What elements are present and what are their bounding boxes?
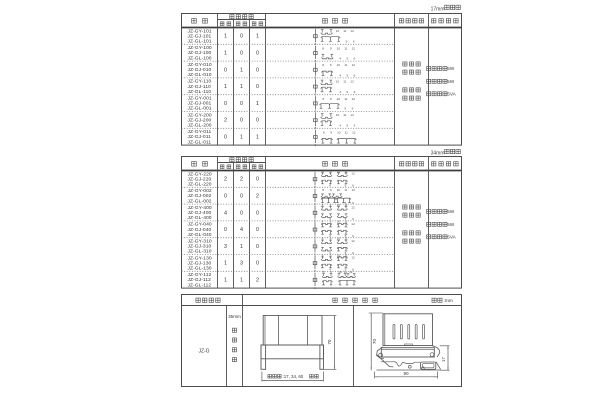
svg-text:JZ-GY-400: JZ-GY-400 (188, 205, 212, 211)
svg-text:11: 11 (344, 169, 347, 173)
svg-text:JZ-GJ-112: JZ-GJ-112 (188, 277, 212, 283)
svg-text:0: 0 (256, 67, 259, 73)
svg-text:1: 1 (256, 101, 259, 107)
svg-text:0: 0 (224, 135, 227, 141)
svg-text:9: 9 (330, 97, 332, 101)
svg-text:JZ-GY-220: JZ-GY-220 (188, 171, 212, 177)
svg-text:17: 17 (441, 357, 446, 362)
svg-text:JZ-GJ-040: JZ-GJ-040 (188, 227, 212, 233)
svg-text:12: 12 (351, 222, 355, 226)
svg-text:JZ-GJ-001: JZ-GJ-001 (188, 101, 212, 107)
svg-text:1: 1 (256, 34, 259, 40)
svg-text:9: 9 (330, 130, 332, 134)
svg-text:1: 1 (240, 84, 243, 90)
svg-text:0: 0 (224, 67, 227, 73)
svg-text:JZ-GL-220: JZ-GL-220 (188, 182, 212, 188)
svg-text:10: 10 (337, 46, 341, 50)
svg-text:12: 12 (351, 172, 355, 176)
svg-text:12: 12 (351, 205, 355, 209)
svg-text:35mm: 35mm (228, 314, 241, 319)
svg-text:12: 12 (352, 188, 356, 192)
svg-text:12: 12 (350, 29, 354, 33)
svg-text:JZ-GL-200: JZ-GL-200 (188, 123, 212, 129)
svg-text:10: 10 (337, 63, 341, 67)
svg-text:3: 3 (224, 244, 227, 250)
svg-text:0: 0 (256, 210, 259, 216)
svg-text:5W: 5W (447, 222, 455, 227)
svg-text:JZ-GL-002: JZ-GL-002 (188, 198, 212, 204)
svg-text:JZ-GY-001: JZ-GY-001 (188, 96, 212, 102)
svg-text:JZ-GJ-200: JZ-GJ-200 (188, 117, 212, 123)
svg-text:8: 8 (322, 203, 324, 207)
svg-text:3: 3 (240, 261, 243, 267)
svg-text:8: 8 (322, 220, 324, 224)
svg-text:0: 0 (256, 227, 259, 233)
svg-text:JZ-GY-101: JZ-GY-101 (188, 28, 212, 34)
svg-text:10: 10 (336, 29, 340, 33)
svg-text:5: 5 (347, 73, 349, 77)
svg-text:2: 2 (224, 118, 227, 124)
svg-text:JZ-GY-011: JZ-GY-011 (188, 129, 212, 135)
svg-text:4: 4 (339, 124, 341, 128)
svg-text:5VA: 5VA (447, 235, 456, 240)
svg-text:8: 8 (322, 188, 324, 192)
svg-text:JZ-GY-112: JZ-GY-112 (188, 272, 212, 278)
svg-text:2: 2 (240, 177, 243, 183)
svg-text:JZ-GJ-310: JZ-GJ-310 (188, 244, 212, 250)
svg-text:12: 12 (350, 113, 354, 117)
svg-text:11: 11 (343, 80, 346, 84)
svg-text:12: 12 (352, 63, 356, 67)
svg-text:5W: 5W (447, 209, 455, 214)
svg-text:10: 10 (337, 97, 341, 101)
svg-text:JZ-GJ-110: JZ-GJ-110 (188, 84, 212, 90)
svg-text:JZ-GL-310: JZ-GL-310 (188, 249, 212, 255)
svg-text:0: 0 (224, 194, 227, 200)
svg-text:1: 1 (256, 135, 259, 141)
svg-text:11: 11 (343, 29, 346, 33)
svg-text:JZ-GL-040: JZ-GL-040 (188, 232, 212, 238)
svg-text:JZ-GY-010: JZ-GY-010 (188, 62, 212, 68)
svg-text:11: 11 (344, 46, 347, 50)
svg-text:JZ-GL-130: JZ-GL-130 (188, 266, 212, 272)
svg-text:5VA: 5VA (447, 92, 456, 97)
svg-text:0: 0 (256, 177, 259, 183)
svg-text:10: 10 (337, 169, 341, 173)
svg-text:10: 10 (337, 253, 341, 257)
svg-text:5W: 5W (447, 79, 455, 84)
svg-text:2: 2 (256, 278, 259, 284)
svg-text:11: 11 (344, 203, 347, 207)
svg-text:12: 12 (349, 270, 353, 274)
svg-text:0: 0 (256, 118, 259, 124)
svg-text:JZ-GJ-002: JZ-GJ-002 (188, 193, 212, 199)
svg-text:0: 0 (240, 210, 243, 216)
svg-text:0: 0 (224, 101, 227, 107)
svg-text:11: 11 (345, 130, 348, 134)
svg-text:4: 4 (339, 90, 341, 94)
svg-text:0: 0 (240, 194, 243, 200)
svg-text:11: 11 (344, 188, 347, 192)
svg-text:0: 0 (240, 34, 243, 40)
svg-text:JZ-GY-310: JZ-GY-310 (188, 239, 212, 245)
svg-text:5: 5 (344, 107, 346, 111)
svg-text:5: 5 (346, 40, 348, 44)
svg-text:0: 0 (256, 244, 259, 250)
svg-text:5: 5 (347, 124, 349, 128)
svg-text:0: 0 (256, 84, 259, 90)
svg-text:JZ-GL-010: JZ-GL-010 (188, 72, 212, 78)
svg-text:0: 0 (240, 118, 243, 124)
svg-text:1: 1 (240, 135, 243, 141)
svg-text:6: 6 (354, 73, 356, 77)
svg-text:JZ-GJ-400: JZ-GJ-400 (188, 210, 212, 216)
svg-text:1: 1 (224, 51, 227, 57)
svg-text:8: 8 (322, 169, 324, 173)
svg-text:90: 90 (403, 371, 409, 376)
svg-text:10: 10 (336, 80, 340, 84)
svg-text:1: 1 (240, 67, 243, 73)
svg-text:6: 6 (354, 57, 356, 61)
svg-text:5W: 5W (447, 66, 455, 71)
svg-text:10: 10 (336, 113, 340, 117)
svg-text:0: 0 (256, 51, 259, 57)
svg-text:10: 10 (337, 130, 341, 134)
svg-text:10: 10 (337, 237, 341, 241)
svg-text:4: 4 (240, 227, 243, 233)
svg-text:12: 12 (352, 130, 356, 134)
svg-text:12: 12 (352, 46, 356, 50)
svg-text:9: 9 (330, 253, 332, 257)
svg-text:6: 6 (354, 124, 356, 128)
svg-text:11: 11 (344, 270, 347, 274)
svg-text:6: 6 (353, 40, 355, 44)
svg-text:8: 8 (322, 97, 324, 101)
svg-text:11: 11 (344, 97, 347, 101)
svg-text:10: 10 (337, 220, 341, 224)
svg-text:9: 9 (330, 63, 332, 67)
svg-text:11: 11 (344, 253, 347, 257)
svg-text:JZ-GJ-011: JZ-GJ-011 (188, 134, 212, 140)
svg-text:70: 70 (327, 339, 332, 345)
svg-text:JZ-GJ-220: JZ-GJ-220 (188, 176, 212, 182)
svg-text:JZ-GJ-101: JZ-GJ-101 (188, 33, 212, 39)
svg-text:8: 8 (323, 270, 325, 274)
svg-text:34mm: 34mm (431, 151, 445, 157)
svg-text:1: 1 (240, 244, 243, 250)
svg-text:JZ-GJ-010: JZ-GJ-010 (188, 67, 212, 73)
svg-text:10: 10 (337, 188, 341, 192)
svg-text:JZ-GY-040: JZ-GY-040 (188, 222, 212, 228)
svg-text:JZ-GY-100: JZ-GY-100 (188, 45, 212, 51)
svg-text:4: 4 (339, 57, 341, 61)
svg-text:JZ-G: JZ-G (198, 349, 209, 355)
svg-text:8: 8 (322, 46, 324, 50)
svg-text:6: 6 (352, 107, 354, 111)
svg-text:5: 5 (347, 57, 349, 61)
svg-text:9: 9 (330, 220, 332, 224)
svg-text:9: 9 (330, 237, 332, 241)
svg-text:12: 12 (352, 97, 356, 101)
svg-text:4: 4 (224, 210, 227, 216)
svg-text:12: 12 (351, 256, 355, 260)
svg-text:11: 11 (344, 237, 347, 241)
svg-text:8: 8 (322, 237, 324, 241)
svg-text:2: 2 (224, 177, 227, 183)
svg-text:8: 8 (322, 253, 324, 257)
svg-text:JZ-GY-110: JZ-GY-110 (188, 79, 212, 85)
svg-text:1: 1 (224, 278, 227, 284)
svg-text:JZ-GL-100: JZ-GL-100 (188, 55, 212, 61)
svg-text:JZ-GL-110: JZ-GL-110 (188, 89, 212, 95)
svg-text:10: 10 (338, 270, 342, 274)
svg-text:12: 12 (351, 239, 355, 243)
svg-text:6: 6 (354, 90, 356, 94)
svg-text:JZ-GL-101: JZ-GL-101 (188, 39, 212, 45)
svg-text:12: 12 (350, 80, 354, 84)
svg-text:9: 9 (330, 188, 332, 192)
svg-text:11: 11 (343, 113, 346, 117)
svg-text::mm: :mm (444, 299, 453, 304)
svg-text:JZ-GJ-100: JZ-GJ-100 (188, 50, 212, 56)
svg-text:JZ-GJ-130: JZ-GJ-130 (188, 260, 212, 266)
svg-text:9: 9 (330, 46, 332, 50)
svg-text:1: 1 (224, 34, 227, 40)
svg-text:0: 0 (256, 261, 259, 267)
svg-text:5: 5 (347, 90, 349, 94)
svg-text:11: 11 (344, 63, 347, 67)
svg-text:8: 8 (322, 63, 324, 67)
svg-text:9: 9 (330, 203, 332, 207)
svg-text:JZ-GY-002: JZ-GY-002 (188, 188, 212, 194)
svg-text:1: 1 (224, 261, 227, 267)
svg-text:JZ-GY-200: JZ-GY-200 (188, 112, 212, 118)
svg-text:10: 10 (337, 203, 341, 207)
svg-text:JZ-GL-400: JZ-GL-400 (188, 215, 212, 221)
svg-text:JZ-GL-001: JZ-GL-001 (188, 106, 212, 112)
svg-text:1: 1 (240, 278, 243, 284)
svg-text:4: 4 (339, 73, 341, 77)
svg-text:0: 0 (240, 51, 243, 57)
svg-text:8: 8 (323, 130, 325, 134)
svg-text:0: 0 (224, 227, 227, 233)
svg-text:JZ-GL-112: JZ-GL-112 (188, 282, 212, 288)
svg-text:2: 2 (256, 194, 259, 200)
svg-text:0: 0 (240, 101, 243, 107)
svg-text:11: 11 (344, 220, 347, 224)
svg-text:1: 1 (224, 84, 227, 90)
svg-text:9: 9 (330, 270, 332, 274)
svg-text:9: 9 (330, 169, 332, 173)
svg-text:JZ-GY-130: JZ-GY-130 (188, 255, 212, 261)
svg-text:17mm: 17mm (431, 6, 445, 12)
svg-text:70: 70 (372, 339, 377, 345)
svg-text::17, 34, 60: :17, 34, 60 (283, 374, 304, 379)
svg-text:JZ-GL-011: JZ-GL-011 (188, 139, 212, 145)
